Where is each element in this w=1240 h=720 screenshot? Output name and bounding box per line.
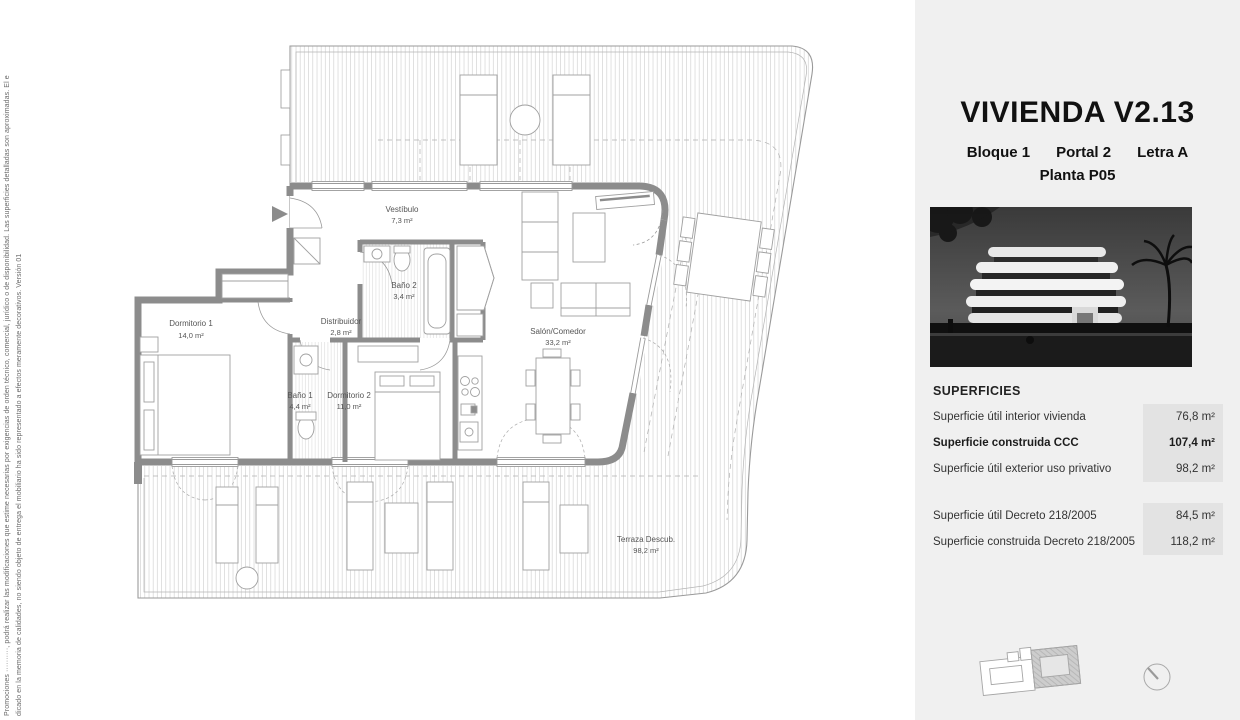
kitchen-counter — [458, 356, 482, 450]
bed-dormitorio-2 — [375, 372, 440, 460]
letra-label: Letra A — [1137, 144, 1188, 161]
row-label: Superficie construida CCC — [933, 437, 1143, 449]
row-label: Superficie construida Decreto 218/2005 — [933, 536, 1143, 548]
row-value: 98,2 m² — [1143, 456, 1223, 482]
room-label-vestibulo: Vestíbulo — [386, 205, 419, 214]
table-row: Superficie útil Decreto 218/2005 84,5 m² — [933, 503, 1223, 529]
row-value: 76,8 m² — [1143, 404, 1223, 430]
room-area-bano-1: 4,4 m² — [289, 402, 311, 411]
north-compass-icon — [1140, 660, 1174, 694]
armchair — [573, 213, 605, 262]
terrace-dining-set — [673, 211, 775, 303]
room-label-terraza: Terraza Descub. — [617, 535, 675, 544]
room-label-bano-1: Baño 1 — [287, 391, 313, 400]
nightstand-dormitorio-1 — [140, 337, 158, 352]
sofa-secondary — [561, 283, 630, 316]
table-row: Superficie construida CCC 107,4 m² — [933, 430, 1223, 456]
sofa-main — [522, 192, 558, 280]
parapet-planters — [281, 70, 290, 165]
unit-title: VIVIENDA V2.13 — [915, 96, 1240, 130]
floor-plan-drawing: Vestíbulo 7,3 m² Baño 2 3,4 m² Dormitori… — [0, 0, 915, 720]
table-row: Superficie útil exterior uso privativo 9… — [933, 456, 1223, 482]
row-value: 107,4 m² — [1143, 430, 1223, 456]
entrance-arrow-icon — [272, 206, 288, 222]
superficies-table: Superficie útil interior vivienda 76,8 m… — [933, 404, 1223, 555]
floor-plan: Vestíbulo 7,3 m² Baño 2 3,4 m² Dormitori… — [0, 0, 915, 720]
row-label: Superficie útil exterior uso privativo — [933, 463, 1143, 475]
table-row: Superficie útil interior vivienda 76,8 m… — [933, 404, 1223, 430]
bloque-label: Bloque 1 — [967, 144, 1030, 161]
room-area-distribuidor: 2,8 m² — [330, 328, 352, 337]
table-row: Superficie construida Decreto 218/2005 1… — [933, 529, 1223, 555]
keyplan — [975, 638, 1095, 702]
room-area-dormitorio-1: 14,0 m² — [178, 331, 204, 340]
bed-dormitorio-1 — [140, 355, 230, 455]
planta-label: Planta P05 — [915, 167, 1240, 184]
room-area-vestibulo: 7,3 m² — [391, 216, 413, 225]
room-label-distribuidor: Distribuidor — [321, 317, 362, 326]
room-area-dormitorio-2: 11,0 m² — [337, 402, 362, 411]
plan-sheet: Promociones ··········, podrá realizar l… — [0, 0, 1240, 720]
desk-dormitorio-2 — [358, 346, 418, 362]
row-label: Superficie útil Decreto 218/2005 — [933, 510, 1143, 522]
superficies-heading: SUPERFICIES — [933, 384, 1021, 398]
row-value: 84,5 m² — [1143, 503, 1223, 529]
wardrobe-dormitorio-1 — [222, 274, 288, 298]
room-label-dormitorio-2: Dormitorio 2 — [327, 391, 371, 400]
building-render-image — [930, 207, 1192, 367]
info-panel: VIVIENDA V2.13 Bloque 1 Portal 2 Letra A… — [915, 0, 1240, 720]
row-value: 118,2 m² — [1143, 529, 1223, 555]
room-area-bano-2: 3,4 m² — [393, 292, 415, 301]
room-label-dormitorio-1: Dormitorio 1 — [169, 319, 213, 328]
row-label: Superficie útil interior vivienda — [933, 411, 1143, 423]
room-label-salon: Salón/Comedor — [530, 327, 586, 336]
room-label-bano-2: Baño 2 — [391, 281, 417, 290]
unit-subtitle: Bloque 1 Portal 2 Letra A — [915, 144, 1240, 161]
side-table — [531, 283, 553, 308]
room-area-salon: 33,2 m² — [545, 338, 571, 347]
portal-label: Portal 2 — [1056, 144, 1111, 161]
room-area-terraza: 98,2 m² — [633, 546, 659, 555]
